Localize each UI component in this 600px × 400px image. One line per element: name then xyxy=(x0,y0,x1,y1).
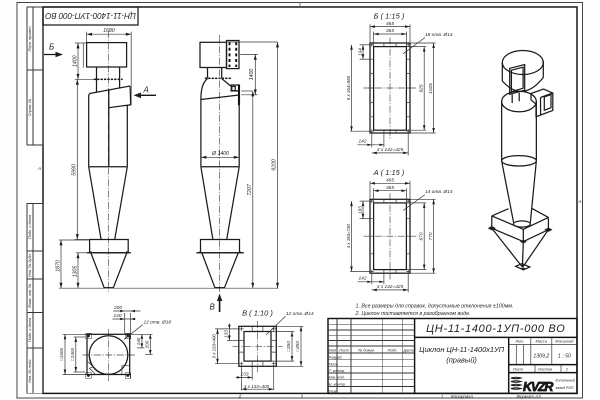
svg-text:А: А xyxy=(37,166,41,171)
svg-text:1400: 1400 xyxy=(72,55,78,67)
svg-text:Инв. № подл.: Инв. № подл. xyxy=(27,359,32,383)
svg-text:1680: 1680 xyxy=(103,28,115,34)
svg-text:Взам. инв. №: Взам. инв. № xyxy=(27,283,32,308)
svg-text:В: В xyxy=(210,303,216,312)
svg-text:183: 183 xyxy=(357,206,362,214)
svg-text:2. Циклон поставляется в разоб: 2. Циклон поставляется в разобранном вид… xyxy=(355,311,471,317)
svg-text:142: 142 xyxy=(358,276,366,282)
svg-text:□1400: □1400 xyxy=(70,348,75,361)
svg-text:142: 142 xyxy=(358,139,366,145)
svg-text:9200: 9200 xyxy=(272,159,278,171)
svg-text:Разраб.: Разраб. xyxy=(329,356,343,360)
svg-text:Б ( 1:15 ): Б ( 1:15 ) xyxy=(374,12,405,21)
svg-text:Т. контр.: Т. контр. xyxy=(329,369,345,373)
svg-text:№ докум.: № докум. xyxy=(358,349,375,353)
svg-text:140: 140 xyxy=(113,313,121,319)
svg-text:3 x 133=400: 3 x 133=400 xyxy=(212,334,217,359)
svg-text:1305: 1305 xyxy=(72,266,78,278)
svg-text:Утв.: Утв. xyxy=(329,389,338,393)
svg-text:Листов: Листов xyxy=(537,367,552,372)
svg-text:465: 465 xyxy=(386,178,394,184)
svg-text:Лист: Лист xyxy=(512,367,524,372)
svg-text:Масса: Масса xyxy=(536,339,548,344)
svg-text:Формат А3: Формат А3 xyxy=(516,394,541,399)
svg-text:Б: Б xyxy=(49,43,54,52)
svg-text:Лит.: Лит. xyxy=(514,339,524,344)
svg-text:12 отв. Ø18: 12 отв. Ø18 xyxy=(144,319,172,325)
svg-text:□450: □450 xyxy=(295,341,300,352)
svg-text:200: 200 xyxy=(113,305,122,311)
svg-text:Справ. №: Справ. № xyxy=(27,98,32,116)
svg-text:В ( 1:10 ): В ( 1:10 ) xyxy=(242,309,273,318)
svg-text:Котельный: Котельный xyxy=(556,379,576,383)
svg-text:365: 365 xyxy=(386,28,394,34)
svg-text:1 : 50: 1 : 50 xyxy=(558,354,571,360)
svg-text:14 отв. Ø14: 14 отв. Ø14 xyxy=(425,189,453,195)
svg-text:Циклон ЦН-11-1400х1УП: Циклон ЦН-11-1400х1УП xyxy=(419,345,505,354)
svg-text:А: А xyxy=(577,199,581,204)
svg-text:А: А xyxy=(143,86,149,95)
svg-text:3 x 142=425: 3 x 142=425 xyxy=(377,147,404,153)
svg-text:Изм: Изм xyxy=(329,349,336,353)
svg-text:ЦН-11-1400-1УП-000 ВО: ЦН-11-1400-1УП-000 ВО xyxy=(426,323,565,335)
svg-text:Перв. примен.: Перв. примен. xyxy=(27,26,32,52)
svg-text:ЦН-11-1400-1УП-000 ВО: ЦН-11-1400-1УП-000 ВО xyxy=(45,11,136,20)
svg-text:Подп. и дата: Подп. и дата xyxy=(27,214,32,239)
svg-text:Копировал: Копировал xyxy=(451,394,473,399)
svg-text:3 x 142=425: 3 x 142=425 xyxy=(377,284,404,290)
svg-text:200: 200 xyxy=(144,340,149,349)
svg-text:133: 133 xyxy=(224,330,229,338)
svg-text:670: 670 xyxy=(418,232,424,240)
svg-text:Масштаб: Масштаб xyxy=(555,339,574,344)
svg-text:Инв. № дубл.: Инв. № дубл. xyxy=(27,253,32,277)
svg-text:6 x 164=985: 6 x 164=985 xyxy=(346,75,351,100)
svg-text:1870: 1870 xyxy=(55,260,61,272)
svg-text:□1606: □1606 xyxy=(59,348,64,361)
svg-text:133: 133 xyxy=(240,371,248,377)
svg-text:18 отв. Ø14: 18 отв. Ø14 xyxy=(425,32,453,38)
svg-text:Подп. и дата: Подп. и дата xyxy=(27,317,32,342)
svg-text:Нач.отд.: Нач.отд. xyxy=(329,376,345,380)
svg-text:завод РЭП: завод РЭП xyxy=(555,386,574,390)
svg-text:140: 140 xyxy=(136,337,141,345)
svg-text:2: 2 xyxy=(238,394,242,399)
svg-text:770: 770 xyxy=(428,232,434,240)
svg-text:12 отв. Ø14: 12 отв. Ø14 xyxy=(286,311,314,317)
svg-text:Н. контр.: Н. контр. xyxy=(329,383,346,387)
svg-text:1025: 1025 xyxy=(428,83,434,94)
svg-text:Лист: Лист xyxy=(338,349,349,353)
svg-text:Дата: Дата xyxy=(403,349,414,353)
svg-text:□350: □350 xyxy=(286,341,291,352)
svg-text:1. Все размеры для справок, до: 1. Все размеры для справок, допустимые о… xyxy=(356,304,514,310)
svg-text:KVZR: KVZR xyxy=(523,380,553,394)
svg-text:465: 465 xyxy=(386,21,394,27)
svg-text:1: 1 xyxy=(566,367,568,372)
svg-text:(правый): (правый) xyxy=(446,356,477,365)
svg-text:3 x 133=400: 3 x 133=400 xyxy=(244,384,270,389)
svg-text:Пров.: Пров. xyxy=(329,362,339,366)
svg-text:Подп.: Подп. xyxy=(387,349,397,353)
svg-text:365: 365 xyxy=(386,185,394,191)
svg-text:Ø 1400: Ø 1400 xyxy=(211,151,229,157)
svg-text:А ( 1:15 ): А ( 1:15 ) xyxy=(373,168,405,177)
svg-text:1309,2: 1309,2 xyxy=(533,354,549,360)
svg-text:5990: 5990 xyxy=(72,164,78,176)
svg-text:164: 164 xyxy=(357,48,362,56)
svg-text:925: 925 xyxy=(418,84,424,92)
svg-text:1400: 1400 xyxy=(249,69,255,81)
svg-text:4 x 183=730: 4 x 183=730 xyxy=(346,223,351,248)
svg-text:7207: 7207 xyxy=(247,183,253,196)
